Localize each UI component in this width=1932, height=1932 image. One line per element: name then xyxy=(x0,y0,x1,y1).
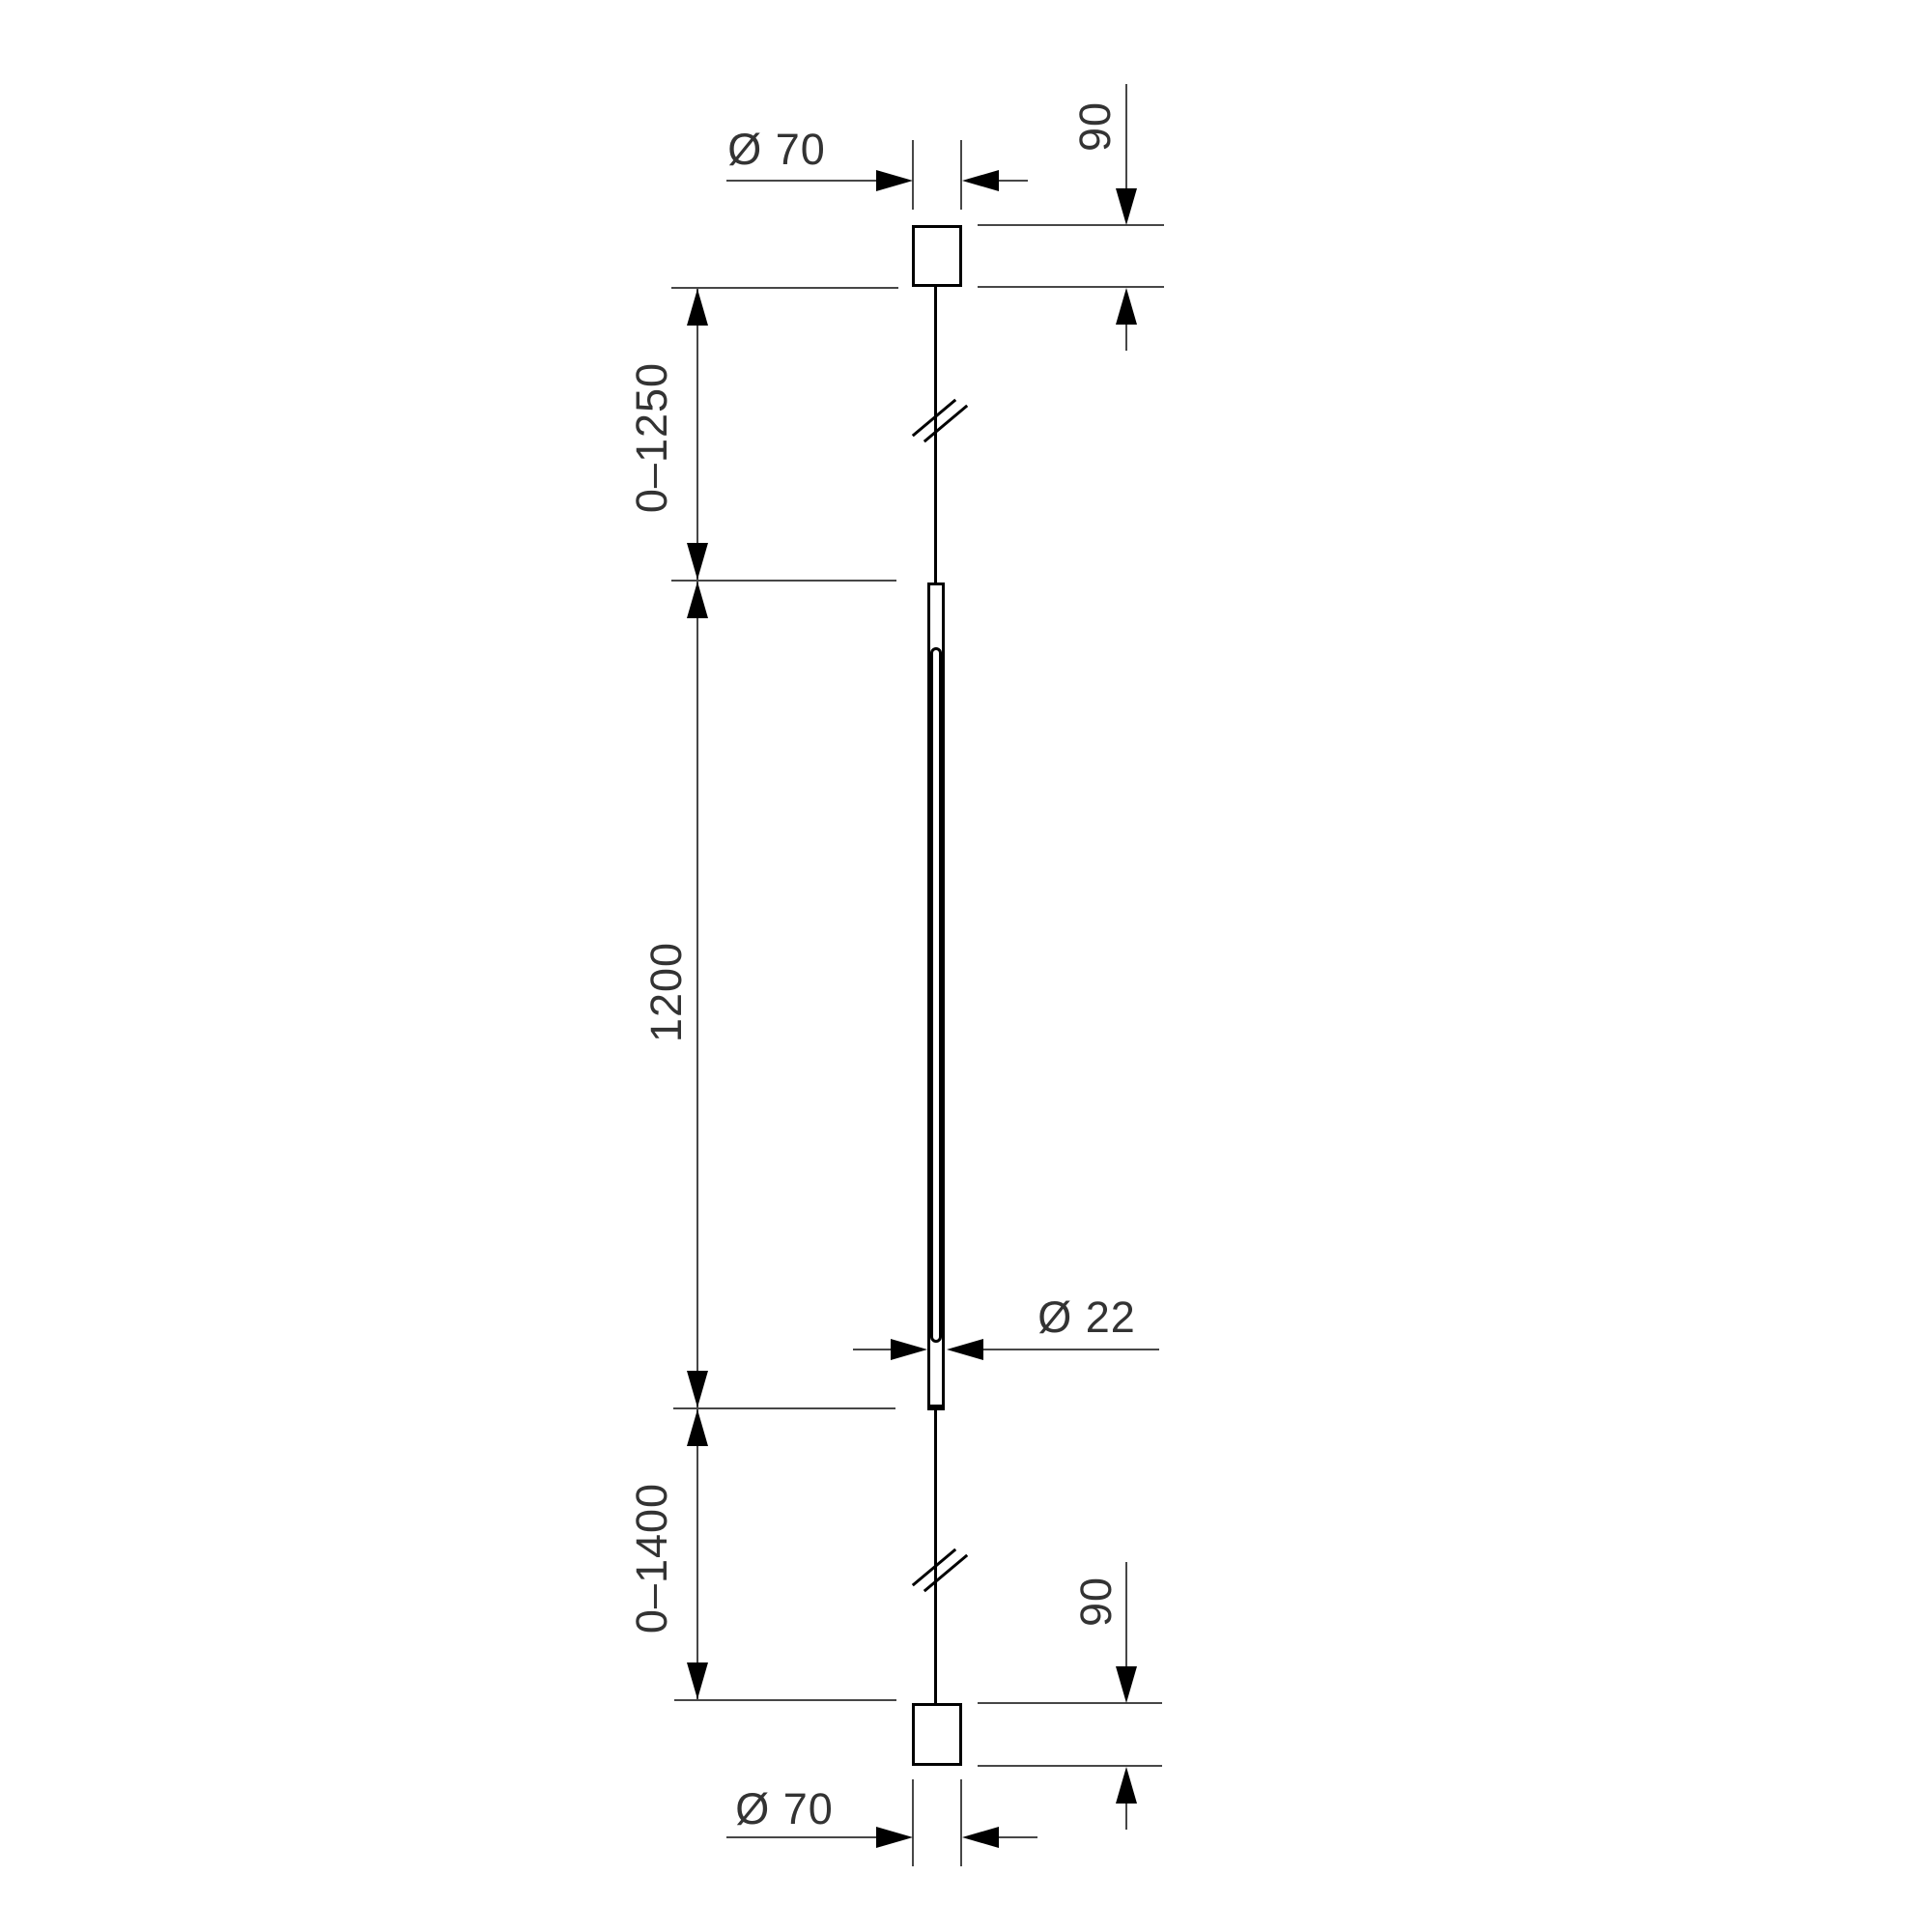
dim-line xyxy=(726,1836,877,1838)
dim-line xyxy=(696,288,698,581)
arrow-left-icon xyxy=(962,1827,999,1848)
arrow-up-icon xyxy=(1116,288,1137,325)
dim-line xyxy=(696,1408,698,1700)
dim-line xyxy=(999,180,1028,182)
dim-label-bottom-canopy-diameter: Ø 70 xyxy=(688,1787,881,1832)
arrow-left-icon xyxy=(962,170,999,191)
arrow-down-icon xyxy=(687,1371,708,1407)
arrow-down-icon xyxy=(1116,188,1137,225)
dim-line xyxy=(1125,84,1127,189)
cable-break-bottom-slash-2 xyxy=(923,1554,968,1593)
dim-line xyxy=(983,1349,1159,1350)
dimension-drawing: Ø 70 90 0–1250 1200 0–1400 Ø 22 90 Ø 70 xyxy=(0,0,1932,1932)
dim-line xyxy=(1125,325,1127,351)
cable-break-top-slash-2 xyxy=(923,405,968,443)
dim-line xyxy=(696,581,698,1408)
dim-label-bottom-canopy-height: 90 xyxy=(1074,1553,1119,1650)
dim-label-luminaire-length: 1200 xyxy=(644,867,689,1118)
ext-line xyxy=(912,1779,914,1866)
suspension-cable-bottom xyxy=(934,1410,937,1703)
arrow-up-icon xyxy=(687,1409,708,1446)
top-canopy xyxy=(912,225,962,287)
arrow-right-icon xyxy=(891,1339,927,1360)
dim-label-bottom-suspension-range: 0–1400 xyxy=(630,1433,674,1684)
arrow-down-icon xyxy=(687,543,708,580)
arrow-down-icon xyxy=(1116,1666,1137,1703)
dim-label-top-canopy-diameter: Ø 70 xyxy=(680,128,873,172)
arrow-up-icon xyxy=(1116,1767,1137,1804)
dim-line xyxy=(999,1836,1037,1838)
arrow-right-icon xyxy=(876,170,913,191)
dim-line xyxy=(853,1349,892,1350)
ext-line xyxy=(674,1699,896,1701)
dim-line xyxy=(726,180,877,182)
arrow-up-icon xyxy=(687,289,708,326)
bottom-canopy xyxy=(912,1703,962,1766)
led-inner-tube xyxy=(930,647,942,1343)
dim-line xyxy=(1125,1804,1127,1830)
dim-label-top-canopy-height: 90 xyxy=(1073,78,1118,175)
arrow-up-icon xyxy=(687,582,708,618)
dim-label-top-suspension-range: 0–1250 xyxy=(630,312,674,563)
arrow-down-icon xyxy=(687,1662,708,1699)
arrow-right-icon xyxy=(876,1827,913,1848)
dim-line xyxy=(1125,1562,1127,1666)
arrow-left-icon xyxy=(947,1339,983,1360)
dim-label-tube-diameter: Ø 22 xyxy=(990,1295,1183,1340)
ext-line xyxy=(960,1779,962,1866)
